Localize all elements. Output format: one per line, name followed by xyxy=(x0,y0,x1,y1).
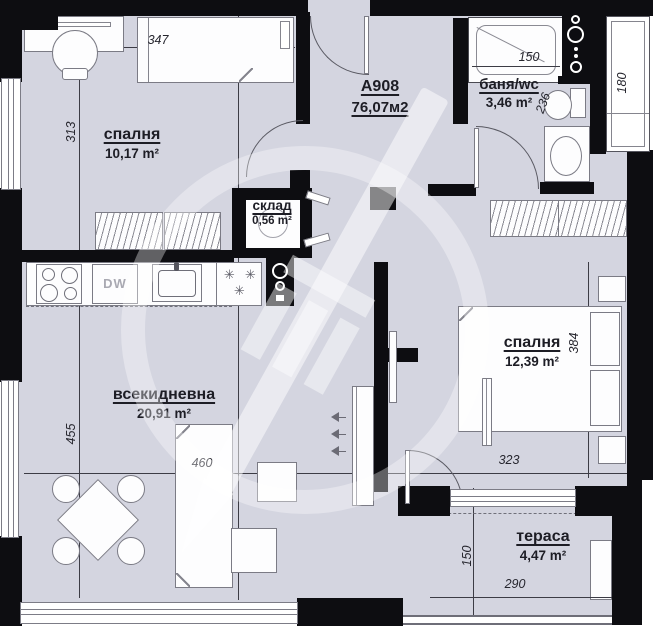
sofa-seat xyxy=(231,528,277,573)
kitchen-upper-cabinet xyxy=(164,212,221,250)
dim-terrace-width: 290 xyxy=(498,577,532,591)
burner-icon xyxy=(42,268,55,281)
boiler-dial-icon xyxy=(272,263,288,279)
freezer-snowflake-icon: ✳ xyxy=(245,268,256,283)
sliding-door-panel xyxy=(389,331,397,403)
fridge: ✳ ✳ ✳ xyxy=(216,262,262,306)
entrance-door-leaf xyxy=(364,16,369,74)
dining-chair xyxy=(52,537,80,565)
dim-bedroom1-depth: 313 xyxy=(64,117,78,147)
sofa-chaise xyxy=(175,424,233,588)
room-area: 20,91 m² xyxy=(103,406,225,421)
dim-bedroom2-width: 323 xyxy=(492,453,526,467)
vent-arrow-icon xyxy=(326,446,346,456)
terrace-door-leaf xyxy=(405,450,410,504)
dining-chair xyxy=(117,537,145,565)
room-label-bedroom-1: спалня 10,17 m² xyxy=(72,126,192,161)
boiler-unit xyxy=(266,258,294,306)
window xyxy=(1,78,21,190)
bed-pillow xyxy=(590,312,620,366)
dimension-line xyxy=(472,66,560,67)
margin xyxy=(0,626,403,630)
dimension-line xyxy=(238,16,239,600)
dim-bed1-width: 347 xyxy=(143,33,173,47)
wardrobe xyxy=(558,200,627,237)
wall-segment xyxy=(558,76,592,84)
freezer-snowflake-icon: ✳ xyxy=(234,284,245,299)
plan-total-area: 76,07м2 xyxy=(319,99,441,116)
stove xyxy=(36,264,82,304)
bedroom-radiator xyxy=(482,378,492,446)
terrace-bench xyxy=(590,540,612,600)
room-area: 4,47 m² xyxy=(494,548,592,563)
bathroom-door-leaf xyxy=(474,128,479,188)
floor-plan: DW ✳ ✳ ✳ xyxy=(0,0,653,630)
boiler-dial-icon xyxy=(275,281,285,291)
window xyxy=(1,380,19,538)
sofa-armrest xyxy=(176,425,190,439)
bed-pillow xyxy=(280,21,290,49)
wall-segment xyxy=(297,598,403,628)
wall-segment xyxy=(0,536,22,600)
sink-bowl xyxy=(158,270,196,297)
margin xyxy=(403,625,653,630)
sink-basin xyxy=(550,136,582,176)
boiler-switch-icon xyxy=(276,295,284,301)
bed-frame-line xyxy=(148,18,149,82)
dim-shaft: 180 xyxy=(615,68,629,98)
washer-dot-icon xyxy=(574,47,578,51)
wall-segment xyxy=(540,182,594,194)
kitchen-counter-edge-dashed xyxy=(26,306,232,307)
dim-bedroom2-depth: 384 xyxy=(567,328,581,358)
sliding-door xyxy=(450,489,576,507)
washer-dot-icon xyxy=(574,54,578,58)
dim-terrace-depth: 150 xyxy=(460,541,474,571)
kitchen-upper-cabinet xyxy=(95,212,163,250)
hall-radiator xyxy=(352,386,374,506)
shaft-divider-line xyxy=(607,113,649,114)
washer-door-icon xyxy=(567,26,584,43)
wall-segment xyxy=(612,486,642,628)
wall-segment xyxy=(0,596,22,626)
plan-title: A908 76,07м2 xyxy=(319,78,441,116)
bed-pillow xyxy=(590,370,620,426)
washer-knob-icon xyxy=(571,15,580,24)
kitchen-sink xyxy=(152,264,202,302)
vent-arrow-icon xyxy=(326,412,346,422)
wall-segment xyxy=(428,184,476,196)
single-bed xyxy=(137,17,294,83)
entrance-opening-floor xyxy=(308,0,370,16)
wardrobe xyxy=(490,200,559,237)
toilet-tank xyxy=(570,88,586,118)
burner-icon xyxy=(64,287,77,300)
room-label-storage: склад 0,56 m² xyxy=(237,198,307,227)
dishwasher: DW xyxy=(92,264,138,304)
washing-machine xyxy=(562,12,590,76)
room-name: спалня xyxy=(72,126,192,144)
margin xyxy=(642,480,653,630)
nightstand xyxy=(598,436,626,464)
nightstand xyxy=(598,276,626,302)
washer-knob-icon xyxy=(570,61,582,73)
burner-icon xyxy=(40,284,58,302)
wall-segment xyxy=(374,262,388,492)
wall-segment xyxy=(0,16,22,82)
sink-tap-icon xyxy=(174,262,179,271)
dimension-line xyxy=(24,473,628,474)
wall-segment xyxy=(370,187,396,210)
room-area: 0,56 m² xyxy=(237,215,307,227)
desk-chair-seat xyxy=(62,68,88,80)
dining-chair xyxy=(117,475,145,503)
dishwasher-label: DW xyxy=(103,276,127,291)
dining-chair xyxy=(52,475,80,503)
plan-code: A908 xyxy=(319,78,441,96)
room-label-terrace: тераса 4,47 m² xyxy=(494,528,592,563)
dim-living-width: 460 xyxy=(185,456,219,470)
wall-segment xyxy=(22,250,234,262)
sofa-armrest xyxy=(176,573,190,587)
wall-segment xyxy=(627,148,653,494)
burner-icon xyxy=(61,267,78,284)
wall-segment xyxy=(296,12,310,124)
wall-segment xyxy=(0,188,22,382)
window xyxy=(20,602,298,624)
wall-segment xyxy=(575,486,615,516)
side-table xyxy=(257,462,297,502)
freezer-snowflake-icon: ✳ xyxy=(224,268,235,283)
dim-living-depth: 455 xyxy=(64,419,78,449)
vent-arrow-icon xyxy=(326,429,346,439)
wall-segment xyxy=(590,12,606,154)
room-name: всекидневна xyxy=(103,386,225,404)
terrace-railing xyxy=(403,615,612,625)
dim-bath-tub: 150 xyxy=(514,50,544,64)
room-name: тераса xyxy=(494,528,592,546)
blanket-fold xyxy=(459,307,473,321)
room-label-living-room: всекидневна 20,91 m² xyxy=(103,386,225,421)
room-name: склад xyxy=(237,198,307,213)
blanket-fold xyxy=(239,68,253,82)
dimension-line xyxy=(430,597,616,598)
room-area: 10,17 m² xyxy=(72,146,192,161)
